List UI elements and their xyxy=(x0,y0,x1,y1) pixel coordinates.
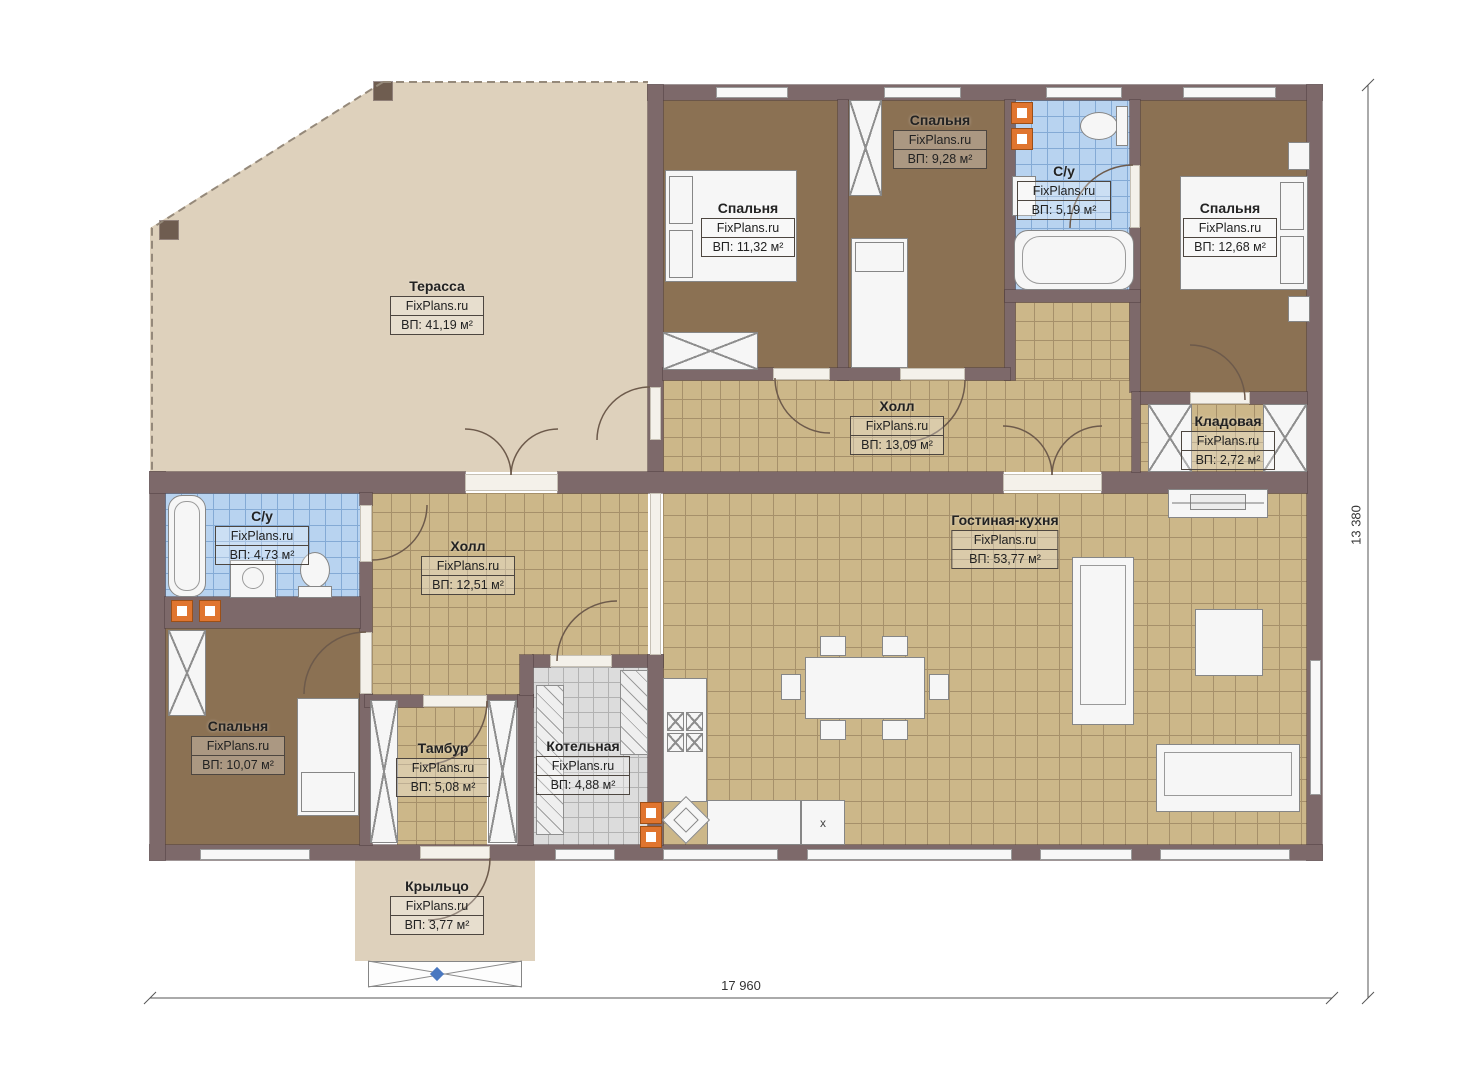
wall-bath-top-bottom xyxy=(1005,290,1140,302)
pillow xyxy=(1280,182,1304,230)
room-area: ВП: 2,72 м² xyxy=(1182,451,1274,469)
brand-watermark: FixPlans.ru xyxy=(894,131,986,150)
room-name: Крыльцо xyxy=(390,878,484,894)
window-bottom-boiler xyxy=(555,849,615,860)
brand-watermark: FixPlans.ru xyxy=(192,737,284,756)
door-opening-hall-living xyxy=(1003,474,1102,491)
wall-bed3-storage-a xyxy=(1140,392,1190,404)
window-bottom-living-4 xyxy=(1160,849,1290,860)
passage-hall-living xyxy=(650,493,661,655)
room-info-box: FixPlans.ru ВП: 2,72 м² xyxy=(1181,431,1275,470)
window-top-2 xyxy=(884,87,961,98)
brand-watermark: FixPlans.ru xyxy=(1018,182,1110,201)
door-opening-boiler xyxy=(550,655,612,667)
room-label-bedroom3: Спальня FixPlans.ru ВП: 12,68 м² xyxy=(1183,200,1277,257)
wardrobe xyxy=(370,700,398,843)
room-area: ВП: 9,28 м² xyxy=(894,150,986,168)
window-top-4 xyxy=(1183,87,1276,98)
window-top-1 xyxy=(716,87,788,98)
brand-watermark: FixPlans.ru xyxy=(952,531,1057,550)
sofa-seat xyxy=(1164,752,1292,796)
room-info-box: FixPlans.ru ВП: 4,88 м² xyxy=(536,756,630,795)
room-info-box: FixPlans.ru ВП: 11,32 м² xyxy=(701,218,795,257)
room-area: ВП: 10,07 м² xyxy=(192,756,284,774)
toilet-tank xyxy=(298,586,332,598)
wall-bed1-hall-b xyxy=(830,368,900,380)
room-label-bedroom1: Спальня FixPlans.ru ВП: 11,32 м² xyxy=(701,200,795,257)
room-info-box: FixPlans.ru ВП: 12,51 м² xyxy=(421,556,515,595)
cooktop-burner xyxy=(686,733,703,752)
window-right-living xyxy=(1310,660,1321,795)
chair xyxy=(820,636,846,656)
brand-watermark: FixPlans.ru xyxy=(537,757,629,776)
room-info-box: FixPlans.ru ВП: 53,77 м² xyxy=(951,530,1058,569)
room-area: ВП: 4,88 м² xyxy=(537,776,629,794)
room-name: Холл xyxy=(850,398,944,414)
wall-bathb-hall-a xyxy=(360,493,372,505)
brand-watermark: FixPlans.ru xyxy=(1184,219,1276,238)
room-area: ВП: 12,68 м² xyxy=(1184,238,1276,256)
room-label-boiler: Котельная FixPlans.ru ВП: 4,88 м² xyxy=(536,738,630,795)
door-opening-entrance xyxy=(420,846,490,859)
window-bottom-bedroom4 xyxy=(200,849,310,860)
door-opening-terrace-double xyxy=(465,474,558,491)
window-bottom-living-1 xyxy=(663,849,778,860)
wall-bathb-bed4 xyxy=(165,597,360,628)
chair xyxy=(882,720,908,740)
door-opening-vestibule xyxy=(423,695,487,707)
room-label-vestibule: Тамбур FixPlans.ru ВП: 5,08 м² xyxy=(396,740,490,797)
room-name: С/у xyxy=(215,508,309,524)
hall-top-floor-upper xyxy=(1015,302,1130,380)
room-info-box: FixPlans.ru ВП: 4,73 м² xyxy=(215,526,309,565)
tv xyxy=(1190,494,1246,510)
bathtub-inner xyxy=(1022,236,1126,284)
wall-boiler-left xyxy=(520,655,533,695)
coffee-table xyxy=(1195,609,1263,676)
wall-mid-b xyxy=(558,472,1003,493)
room-area: ВП: 12,51 м² xyxy=(422,576,514,594)
stove-mark: х xyxy=(820,816,826,830)
wall-mid-a xyxy=(150,472,465,493)
window-bottom-living-3 xyxy=(1040,849,1132,860)
room-area: ВП: 5,08 м² xyxy=(397,778,489,796)
room-info-box: FixPlans.ru ВП: 13,09 м² xyxy=(850,416,944,455)
brand-watermark: FixPlans.ru xyxy=(391,297,483,316)
sofa-seat xyxy=(1080,565,1126,705)
vent-shaft-icon xyxy=(1012,103,1032,123)
cooktop-burner xyxy=(667,712,684,731)
room-name: Спальня xyxy=(1183,200,1277,216)
cooktop-burner xyxy=(686,712,703,731)
vent-shaft-icon xyxy=(172,601,192,621)
room-name: С/у xyxy=(1017,163,1111,179)
room-info-box: FixPlans.ru ВП: 10,07 м² xyxy=(191,736,285,775)
wall-bath-bed3-a xyxy=(1130,100,1140,165)
dimension-height: 13 380 xyxy=(1349,505,1364,545)
door-opening-bedroom4 xyxy=(360,632,372,694)
brand-watermark: FixPlans.ru xyxy=(422,557,514,576)
wall-boiler-top-a xyxy=(533,655,550,667)
chair xyxy=(882,636,908,656)
brand-watermark: FixPlans.ru xyxy=(216,527,308,546)
pillow xyxy=(855,242,904,272)
wardrobe xyxy=(168,630,206,716)
pillow xyxy=(669,176,693,224)
wall-vest-boiler xyxy=(518,695,533,845)
door-opening-bathroom-top xyxy=(1130,165,1140,228)
washing-machine-drum xyxy=(242,567,264,589)
room-info-box: FixPlans.ru ВП: 3,77 м² xyxy=(390,896,484,935)
vent-shaft-icon xyxy=(641,827,661,847)
wall-bed1-bed2 xyxy=(838,100,848,380)
pillow xyxy=(301,772,355,812)
room-info-box: FixPlans.ru ВП: 41,19 м² xyxy=(390,296,484,335)
chair xyxy=(820,720,846,740)
window-bottom-living-2 xyxy=(807,849,1012,860)
room-label-bathroom-bottom: С/у FixPlans.ru ВП: 4,73 м² xyxy=(215,508,309,565)
room-name: Спальня xyxy=(893,112,987,128)
room-label-porch: Крыльцо FixPlans.ru ВП: 3,77 м² xyxy=(390,878,484,935)
room-name: Гостиная-кухня xyxy=(951,512,1058,528)
toilet-icon xyxy=(1080,112,1118,140)
toilet-tank xyxy=(1116,106,1128,146)
chair xyxy=(929,674,949,700)
room-name: Тамбур xyxy=(396,740,490,756)
door-opening-bedroom3 xyxy=(1190,392,1250,404)
room-label-hall-bottom: Холл FixPlans.ru ВП: 12,51 м² xyxy=(421,538,515,595)
wall-bathb-hall-b xyxy=(360,562,372,632)
bathtub-inner xyxy=(174,501,200,591)
room-name: Холл xyxy=(421,538,515,554)
nightstand xyxy=(1288,142,1310,170)
room-area: ВП: 3,77 м² xyxy=(391,916,483,934)
room-label-storage: Кладовая FixPlans.ru ВП: 2,72 м² xyxy=(1181,413,1275,470)
room-area: ВП: 53,77 м² xyxy=(952,550,1057,568)
room-label-bedroom4: Спальня FixPlans.ru ВП: 10,07 м² xyxy=(191,718,285,775)
room-label-bathroom-top: С/у FixPlans.ru ВП: 5,19 м² xyxy=(1017,163,1111,220)
room-name: Кладовая xyxy=(1181,413,1275,429)
brand-watermark: FixPlans.ru xyxy=(702,219,794,238)
room-name: Спальня xyxy=(191,718,285,734)
dining-table xyxy=(805,657,925,719)
door-opening-bathroom-bottom xyxy=(360,505,372,562)
room-area: ВП: 11,32 м² xyxy=(702,238,794,256)
room-name: Котельная xyxy=(536,738,630,754)
terrace-post-1 xyxy=(374,82,392,100)
door-opening-bedroom2 xyxy=(900,368,965,380)
porch-steps xyxy=(368,961,522,987)
vent-shaft-icon xyxy=(200,601,220,621)
floor-plan: х xyxy=(0,0,1474,1080)
wardrobe xyxy=(663,332,758,370)
room-name: Спальня xyxy=(701,200,795,216)
wall-bed3-storage-b xyxy=(1250,392,1307,404)
room-info-box: FixPlans.ru ВП: 9,28 м² xyxy=(893,130,987,169)
cooktop-burner xyxy=(667,733,684,752)
room-info-box: FixPlans.ru ВП: 12,68 м² xyxy=(1183,218,1277,257)
room-area: ВП: 13,09 м² xyxy=(851,436,943,454)
room-info-box: FixPlans.ru ВП: 5,19 м² xyxy=(1017,181,1111,220)
window-top-3 xyxy=(1046,87,1122,98)
wardrobe xyxy=(488,700,517,843)
wall-bed2-hall xyxy=(965,368,1010,380)
wall-left xyxy=(150,472,165,860)
pillow xyxy=(1280,236,1304,284)
chair xyxy=(781,674,801,700)
brand-watermark: FixPlans.ru xyxy=(391,897,483,916)
room-label-bedroom2: Спальня FixPlans.ru ВП: 9,28 м² xyxy=(893,112,987,169)
brand-watermark: FixPlans.ru xyxy=(1182,432,1274,451)
vent-shaft-icon xyxy=(641,803,661,823)
room-area: ВП: 41,19 м² xyxy=(391,316,483,334)
dimension-width: 17 960 xyxy=(721,978,761,993)
room-info-box: FixPlans.ru ВП: 5,08 м² xyxy=(396,758,490,797)
vent-shaft-icon xyxy=(1012,129,1032,149)
room-label-living: Гостиная-кухня FixPlans.ru ВП: 53,77 м² xyxy=(951,512,1058,569)
nightstand xyxy=(1288,296,1310,322)
room-label-terrace: Терасса FixPlans.ru ВП: 41,19 м² xyxy=(390,278,484,335)
door-opening-terrace-single xyxy=(650,387,661,440)
door-opening-bedroom1 xyxy=(773,368,830,380)
wall-storage-left xyxy=(1132,392,1140,472)
brand-watermark: FixPlans.ru xyxy=(397,759,489,778)
room-label-hall-top: Холл FixPlans.ru ВП: 13,09 м² xyxy=(850,398,944,455)
room-area: ВП: 5,19 м² xyxy=(1018,201,1110,219)
terrace-floor xyxy=(150,80,648,472)
terrace-post-2 xyxy=(160,221,178,239)
stove: х xyxy=(801,800,845,845)
pillow xyxy=(669,230,693,278)
room-name: Терасса xyxy=(390,278,484,294)
brand-watermark: FixPlans.ru xyxy=(851,417,943,436)
room-area: ВП: 4,73 м² xyxy=(216,546,308,564)
kitchen-counter xyxy=(707,800,801,845)
wardrobe xyxy=(849,100,882,196)
